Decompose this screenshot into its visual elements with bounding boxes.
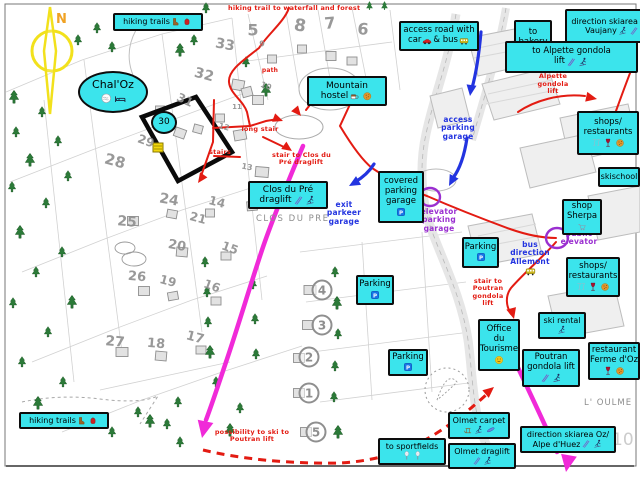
tree-icon [364, 0, 375, 11]
pine-tree-icon [333, 425, 342, 438]
lot-number-7: 7 [324, 13, 337, 33]
cookie-icon [615, 138, 625, 148]
pine-tree-icon [54, 136, 62, 146]
skier-icon [557, 325, 567, 335]
glasses-icon [576, 282, 586, 292]
backpack-icon [182, 17, 192, 27]
pine-tree-icon [59, 377, 67, 387]
ski-icon [540, 373, 550, 383]
label-mountain-hostel: Mountainhostel [307, 76, 387, 106]
building [253, 96, 264, 105]
cart-icon [577, 222, 587, 232]
label-hiking-trails-top: hiking trails [113, 13, 203, 31]
pine-tree-icon [190, 35, 198, 45]
mailbox-icon [153, 143, 163, 152]
pine-tree-icon [174, 397, 182, 407]
label-ski-rental: ski rental [538, 312, 586, 339]
lot-number-20: 20 [167, 237, 187, 255]
wine-icon [603, 138, 613, 148]
ski-icon [472, 456, 482, 466]
skier-icon [474, 425, 484, 435]
note-access-parking-garage: accessparkinggarage [436, 116, 480, 141]
pine-tree-icon [251, 314, 259, 324]
skier-icon [483, 456, 493, 466]
label-lot-30: 30 [151, 111, 177, 134]
compass-rose: N [32, 7, 72, 114]
annotated-village-map: P [0, 0, 640, 480]
building [173, 127, 186, 139]
label-shops-restaurants-2: shops/restaurants [566, 257, 620, 297]
lot-number-26: 26 [127, 269, 146, 286]
label-to-alpette-gondola-lift: to Alpette gondolalift [505, 41, 638, 73]
label-chal-oz: Chal'Oz [78, 71, 148, 113]
label-to-sportfields: to sportfields [378, 438, 446, 465]
building [166, 209, 177, 219]
pine-tree-icon [42, 198, 50, 208]
pine-tree-icon [108, 42, 116, 52]
skier-icon [552, 373, 562, 383]
lot-number-11: 11 [232, 103, 242, 111]
label-office-du-tourisme: OfficeduTourisme [478, 319, 520, 371]
note-possibility-ski: possibility to ski toPoutran lift [210, 429, 294, 444]
pine-tree-icon [331, 361, 339, 371]
pine-tree-icon [32, 267, 40, 277]
bed-icon [114, 92, 127, 105]
pine-tree-icon [33, 396, 42, 409]
pine-tree-icon [64, 171, 72, 181]
label-covered-parking-garage: coveredparkinggarage [378, 171, 424, 223]
note-path: path [258, 68, 282, 75]
cookie-icon [615, 366, 625, 376]
note-exit-parkeer-garage: exitparkeergarage [322, 201, 366, 226]
circled-number-5: 5 [306, 422, 327, 443]
building [298, 45, 307, 53]
lot-number-27: 27 [105, 333, 126, 351]
label-shop-sherpa: shopSherpa [562, 199, 602, 235]
sled-icon [463, 425, 473, 435]
pine-tree-icon [145, 414, 154, 427]
pine-tree-icon [74, 35, 82, 45]
pine-tree-icon [44, 327, 52, 337]
bus-icon [525, 266, 536, 277]
pine-tree-icon [205, 345, 214, 358]
skier-icon [618, 26, 628, 36]
pine-tree-icon [25, 153, 34, 166]
info-icon [494, 355, 504, 365]
label-access-road: access road withcar & bus [399, 21, 479, 51]
lot-number-18: 18 [146, 336, 165, 353]
pine-tree-icon [331, 267, 339, 277]
backpack-icon [88, 416, 98, 426]
cup-icon [349, 91, 360, 102]
pine-tree-icon [163, 419, 171, 429]
note-stair-clos-du-pre: stair to Clos duPré draglift [272, 152, 330, 167]
pine-tree-icon [134, 407, 142, 417]
building [241, 86, 253, 97]
pool-icon [100, 92, 113, 105]
lot-number-13: 13 [241, 162, 254, 173]
pine-tree-icon [176, 437, 184, 447]
pine-tree-icon [252, 349, 260, 359]
pine-tree-icon [15, 225, 24, 238]
pine-tree-icon [201, 257, 209, 267]
building [326, 52, 336, 61]
skier-icon [593, 439, 603, 449]
ski-icon [581, 439, 591, 449]
pine-tree-icon [58, 247, 66, 257]
building [255, 166, 269, 177]
ski-icon [629, 26, 639, 36]
pine-tree-icon [18, 357, 26, 367]
circled-number-2: 2 [299, 347, 320, 368]
lot-number-6: 6 [357, 19, 370, 39]
building [211, 297, 221, 305]
boot-icon [77, 416, 87, 426]
pine-tree-icon [204, 317, 212, 327]
boot-icon [171, 17, 181, 27]
bus-icon [459, 36, 469, 46]
wine-icon [603, 366, 613, 376]
lot-number-5: 5 [247, 21, 258, 40]
circled-number-3: 3 [312, 315, 333, 336]
racket-icon [402, 451, 412, 461]
building [167, 291, 178, 301]
ski-icon [566, 57, 576, 67]
note-long-stair: long stair [238, 126, 282, 133]
wine-icon [588, 282, 598, 292]
tree-icon [379, 0, 390, 11]
circled-number-1: 1 [299, 383, 320, 404]
label-parking-2: Parking [356, 275, 394, 305]
label-clos-du-pre-draglift: Clos du Prédraglift [248, 181, 328, 209]
pine-tree-icon [236, 403, 244, 413]
pine-tree-icon [12, 127, 20, 137]
compass-north-label: N [56, 12, 67, 27]
skier-icon [305, 195, 316, 206]
label-parking-3: Parking [388, 349, 428, 376]
label-olmet-carpet: Olmet carpet [448, 412, 510, 439]
lot-number-25: 25 [117, 213, 138, 231]
building [268, 55, 277, 63]
cookie-icon [600, 282, 610, 292]
racket-icon [413, 451, 423, 461]
glasses-icon [591, 138, 601, 148]
label-parking-1: Parking [462, 237, 499, 268]
pine-tree-icon [175, 43, 184, 56]
building [347, 57, 357, 65]
parking-icon [396, 207, 406, 217]
cookie-icon [362, 91, 373, 102]
circled-number-4: 4 [312, 280, 333, 301]
pine-tree-icon [9, 90, 18, 103]
label-olmet-draglift: Olmet draglift [448, 443, 516, 469]
building [193, 124, 204, 134]
pine-tree-icon [108, 427, 116, 437]
ski-icon [293, 195, 304, 206]
pine-tree-icon [67, 295, 76, 308]
parking-icon [403, 362, 413, 372]
pine-tree-icon [93, 23, 101, 33]
note-bus-direction-allemont: busdirectionAllemont [502, 241, 558, 279]
note-stairs: stairs [206, 149, 234, 156]
pine-tree-icon [8, 182, 16, 192]
pine-tree-icon [334, 329, 342, 339]
skier-icon [578, 57, 588, 67]
parking-icon [370, 290, 380, 300]
label-shops-restaurants-1: shops/restaurants [577, 111, 639, 155]
note-hiking-waterfall: hiking trail to waterfall and forest [228, 0, 378, 12]
note-stair-poutran: stair toPoutrangondolalift [468, 278, 508, 307]
lot-number-24: 24 [158, 190, 180, 209]
board-icon [486, 425, 496, 435]
parking-icon [476, 252, 486, 262]
label-restaurant-ferme-doz: restaurantFerme d'Oz [588, 342, 640, 380]
lot-number-33: 33 [214, 35, 236, 54]
label-skischool: skischool [598, 167, 640, 187]
maptext-clos-du-pre: CLOS DU PRE [256, 214, 330, 224]
pine-tree-icon [9, 298, 17, 308]
maptext-l-oulme: L' OULME [584, 398, 632, 408]
lot-number-9: 9 [259, 40, 265, 49]
label-poutran-gondola-lift: Poutrangondola lift [522, 349, 580, 387]
label-direction-skiarea-oz-alpe-dhuez: direction skiarea Oz/Alpe d'Huez [520, 426, 616, 453]
label-direction-skiarea-vaujany: direction skiarea Oz/Vaujany [565, 9, 640, 43]
building [139, 287, 150, 296]
building [155, 351, 167, 361]
label-hiking-trails-bottom: hiking trails [19, 412, 109, 429]
car-icon [422, 36, 432, 46]
